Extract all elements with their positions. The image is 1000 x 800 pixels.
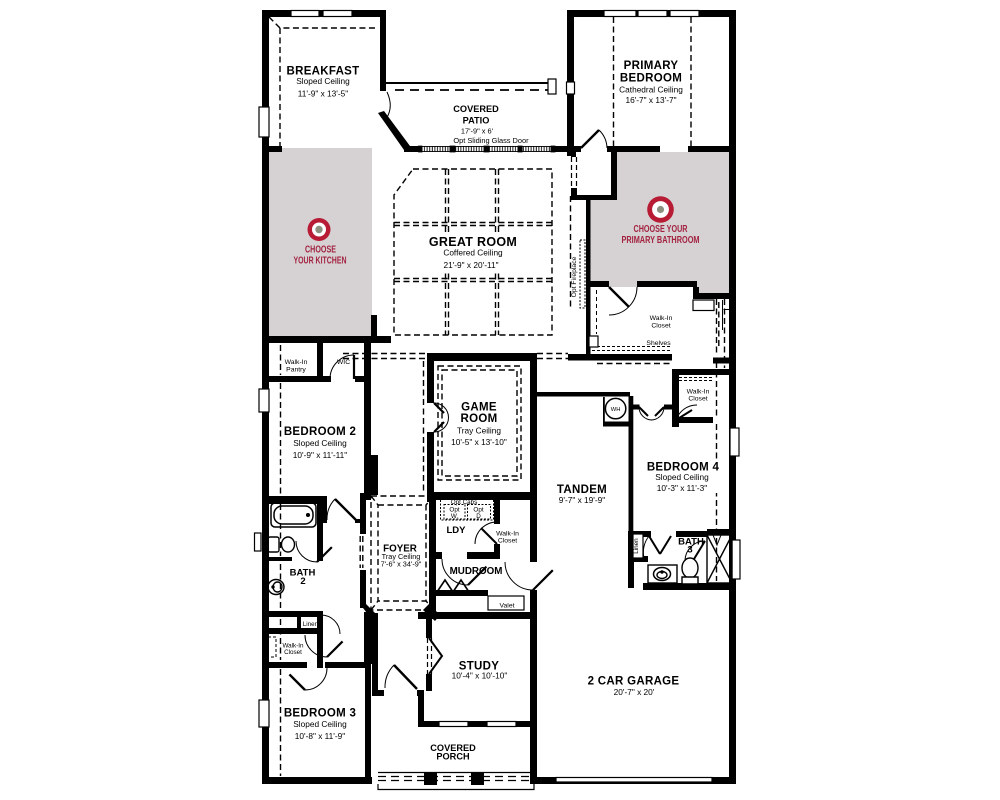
- svg-text:21'-9" x 20'-11": 21'-9" x 20'-11": [443, 260, 498, 270]
- svg-text:PRIMARY: PRIMARY: [624, 60, 679, 72]
- svg-text:GAME: GAME: [461, 402, 497, 414]
- svg-text:Closet: Closet: [498, 538, 517, 545]
- svg-text:3: 3: [687, 545, 692, 556]
- svg-text:9'-7" x 19'-9": 9'-7" x 19'-9": [559, 495, 605, 505]
- svg-text:Shelves: Shelves: [646, 340, 671, 347]
- svg-text:BEDROOM 3: BEDROOM 3: [284, 708, 356, 720]
- svg-text:COVERED: COVERED: [453, 104, 499, 114]
- svg-text:Sloped Ceiling: Sloped Ceiling: [293, 438, 347, 448]
- svg-text:CHOOSE YOUR: CHOOSE YOUR: [634, 224, 688, 235]
- svg-text:Sloped Ceiling: Sloped Ceiling: [296, 76, 350, 86]
- svg-text:20'-7" x 20': 20'-7" x 20': [614, 687, 655, 697]
- svg-text:Walk-In: Walk-In: [496, 531, 519, 538]
- svg-text:WH: WH: [611, 407, 621, 413]
- svg-text:16'-7" x 13'-7": 16'-7" x 13'-7": [625, 95, 676, 105]
- svg-text:Opt Fireplace: Opt Fireplace: [571, 256, 578, 297]
- svg-text:PATIO: PATIO: [463, 116, 490, 126]
- svg-text:11'-9" x 13'-5": 11'-9" x 13'-5": [298, 89, 348, 99]
- svg-text:Linen: Linen: [633, 538, 640, 554]
- svg-text:2 CAR GARAGE: 2 CAR GARAGE: [588, 676, 680, 688]
- svg-text:BEDROOM 2: BEDROOM 2: [284, 426, 356, 438]
- svg-text:Closet: Closet: [284, 649, 302, 656]
- svg-text:ROOM: ROOM: [461, 413, 498, 425]
- svg-text:10'-5" x 13'-10": 10'-5" x 13'-10": [451, 437, 507, 447]
- svg-text:LDY: LDY: [447, 525, 467, 536]
- svg-text:YOUR KITCHEN: YOUR KITCHEN: [294, 255, 347, 266]
- svg-text:Closet: Closet: [688, 396, 707, 403]
- svg-text:WIC: WIC: [337, 359, 350, 366]
- svg-text:2: 2: [300, 576, 305, 587]
- svg-text:W.: W.: [451, 513, 459, 520]
- svg-text:PORCH: PORCH: [436, 752, 470, 762]
- svg-text:17'-9" x 6': 17'-9" x 6': [461, 127, 494, 136]
- svg-text:CHOOSE: CHOOSE: [305, 245, 336, 256]
- svg-text:Linen: Linen: [303, 621, 319, 628]
- svg-text:7'-6" x 34'-9": 7'-6" x 34'-9": [381, 560, 422, 569]
- svg-text:10'-8" x 11'-9": 10'-8" x 11'-9": [295, 731, 345, 741]
- svg-text:Walk-In: Walk-In: [687, 389, 710, 396]
- svg-text:Sloped Ceiling: Sloped Ceiling: [293, 719, 347, 729]
- svg-text:MUDROOM: MUDROOM: [450, 566, 503, 577]
- svg-text:Closet: Closet: [651, 323, 670, 330]
- svg-text:PRIMARY BATHROOM: PRIMARY BATHROOM: [622, 235, 700, 246]
- svg-text:Opt Sliding Glass Door: Opt Sliding Glass Door: [453, 136, 529, 145]
- svg-text:10'-9" x 11'-11": 10'-9" x 11'-11": [293, 450, 347, 460]
- svg-text:D: D: [476, 513, 481, 520]
- svg-text:BEDROOM: BEDROOM: [620, 73, 682, 85]
- svg-text:Valet: Valet: [500, 603, 515, 610]
- svg-text:10'-3" x 11'-3": 10'-3" x 11'-3": [657, 483, 707, 493]
- svg-text:Walk-In: Walk-In: [285, 359, 308, 366]
- svg-text:Tray Ceiling: Tray Ceiling: [457, 426, 501, 436]
- svg-text:Cathedral Ceiling: Cathedral Ceiling: [619, 85, 683, 95]
- svg-text:Opt Cabs: Opt Cabs: [451, 499, 478, 506]
- svg-text:Sloped Ceiling: Sloped Ceiling: [655, 472, 709, 482]
- svg-text:10'-4" x 10'-10": 10'-4" x 10'-10": [452, 671, 508, 681]
- svg-text:Coffered Ceiling: Coffered Ceiling: [443, 248, 503, 258]
- svg-text:Walk-In: Walk-In: [650, 315, 673, 322]
- svg-text:Pantry: Pantry: [286, 367, 306, 374]
